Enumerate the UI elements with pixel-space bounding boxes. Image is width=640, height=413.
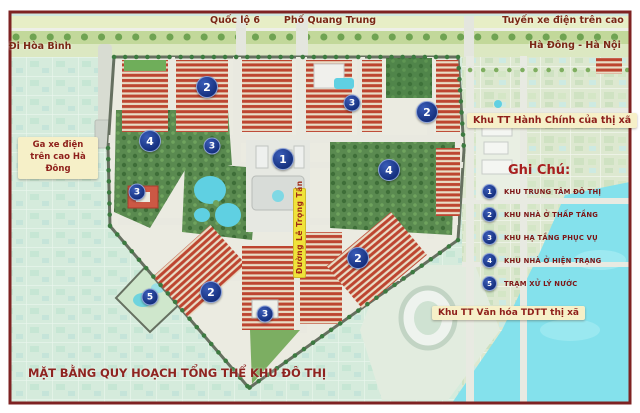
zone-marker: 2 — [200, 281, 222, 303]
road-label-di-hoa-binh: Đi Hòa Bình — [9, 41, 72, 52]
zone-marker: 3 — [129, 184, 146, 201]
road-label-pho-quang-trung: Phố Quang Trung — [284, 15, 376, 26]
zone-marker: 3 — [257, 306, 274, 323]
legend-dot-4: 4 — [482, 253, 497, 268]
zone-marker: 1 — [272, 148, 294, 170]
zone-marker: 5 — [142, 289, 159, 306]
zone-marker: 4 — [378, 159, 400, 181]
zone-marker: 3 — [344, 95, 361, 112]
poster-title: MẶT BẰNG QUY HOẠCH TỔNG THỂ KHU ĐÔ THỊ — [28, 366, 326, 380]
legend-dot-3: 3 — [482, 230, 497, 245]
legend-item-5: 5 TRẠM XỬ LÝ NƯỚC — [482, 276, 630, 291]
legend-item-4: 4 KHU NHÀ Ở HIỆN TRẠNG — [482, 253, 630, 268]
legend-label-1: KHU TRUNG TÂM ĐÔ THỊ — [504, 188, 601, 196]
legend-heading: Ghi Chú: — [508, 163, 630, 178]
road-label-ha-dong-ha-noi: Hà Đông - Hà Nội — [529, 40, 621, 51]
zone-marker: 3 — [204, 138, 221, 155]
station-label-line2: trên cao Hà Đông — [30, 152, 85, 174]
legend-item-3: 3 KHU HẠ TẦNG PHỤC VỤ — [482, 230, 630, 245]
road-label-tuyen-xe-dien: Tuyến xe điện trên cao — [502, 15, 624, 26]
zone-marker: 2 — [196, 76, 218, 98]
legend-dot-2: 2 — [482, 207, 497, 222]
legend-item-1: 1 KHU TRUNG TÂM ĐÔ THỊ — [482, 184, 630, 199]
street-label-le-trong-tan: Đường Lê Trọng Tấn — [293, 188, 306, 278]
legend-label-5: TRẠM XỬ LÝ NƯỚC — [504, 280, 577, 288]
zone-marker: 2 — [416, 101, 438, 123]
legend-label-3: KHU HẠ TẦNG PHỤC VỤ — [504, 234, 598, 242]
zone-marker: 2 — [347, 247, 369, 269]
zone-marker: 4 — [139, 130, 161, 152]
legend-dot-5: 5 — [482, 276, 497, 291]
station-label-line1: Ga xe điện — [33, 140, 84, 150]
road-label-quoc-lo-6: Quốc lộ 6 — [210, 15, 260, 26]
legend-label-2: KHU NHÀ Ở THẤP TẦNG — [504, 211, 598, 219]
station-label-ga-xe-dien: Ga xe điện trên cao Hà Đông — [18, 137, 98, 179]
area-label-hanh-chinh: Khu TT Hành Chính của thị xã — [467, 113, 637, 128]
legend-dot-1: 1 — [482, 184, 497, 199]
map-poster: Quốc lộ 6 Phố Quang Trung Tuyến xe điện … — [0, 0, 640, 413]
legend-item-2: 2 KHU NHÀ Ở THẤP TẦNG — [482, 207, 630, 222]
area-label-van-hoa: Khu TT Văn hóa TDTT thị xã — [432, 306, 585, 320]
legend-label-4: KHU NHÀ Ở HIỆN TRẠNG — [504, 257, 601, 265]
legend: Ghi Chú: 1 KHU TRUNG TÂM ĐÔ THỊ 2 KHU NH… — [482, 163, 630, 299]
